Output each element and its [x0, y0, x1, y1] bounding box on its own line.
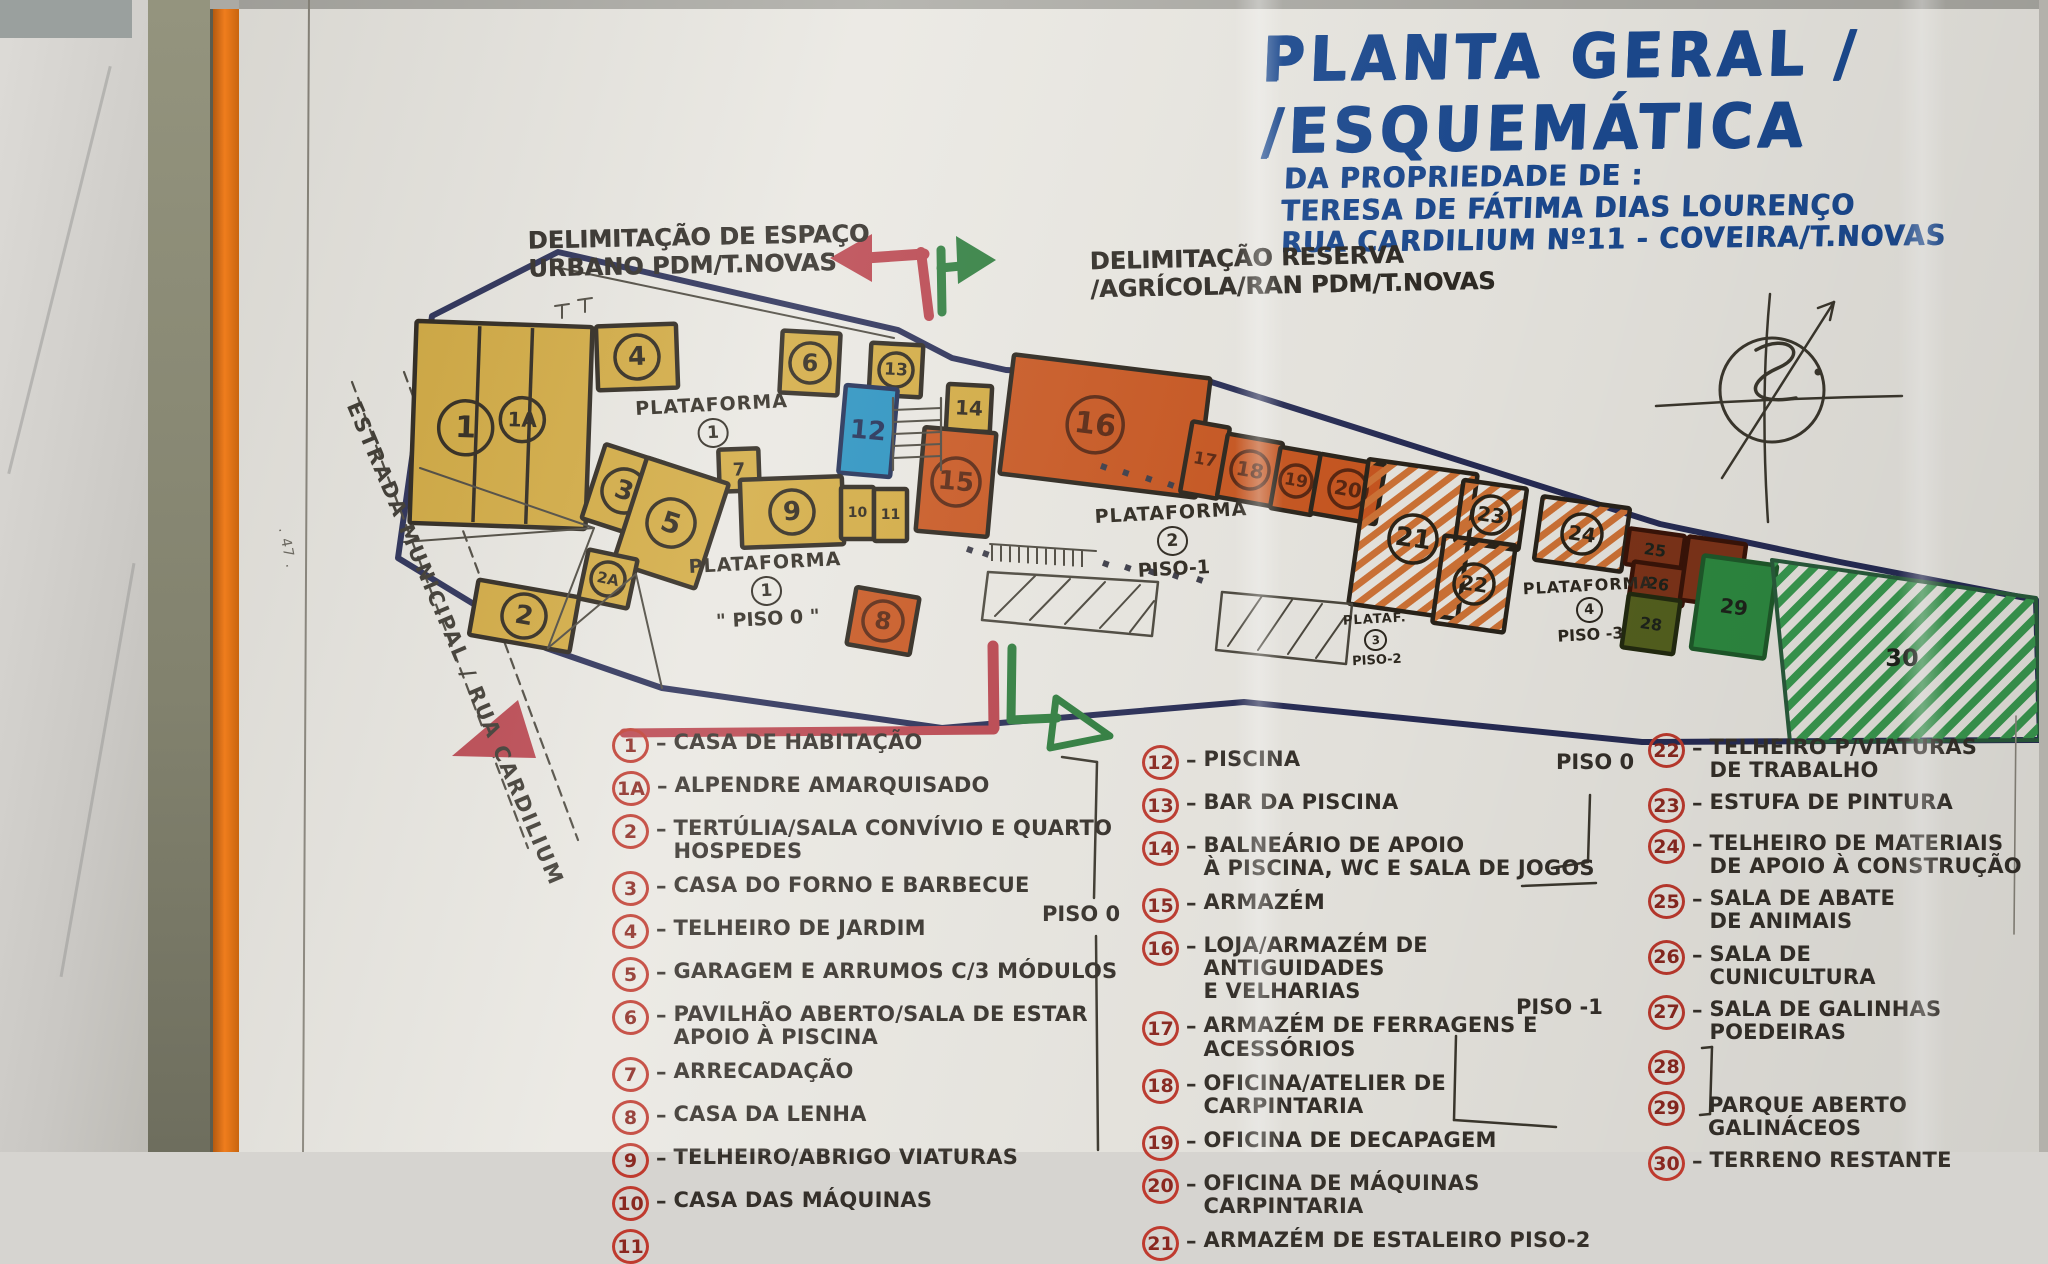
legend-number-11: 11 — [612, 1229, 649, 1264]
legend-item-21: 21–ARMAZÉM DE ESTALEIRO PISO-2 — [1142, 1226, 1612, 1261]
legend-number-20: 20 — [1142, 1169, 1179, 1204]
legend-label-10: CASA DAS MÁQUINAS — [674, 1186, 933, 1212]
photo-of-hand-drawn-site-plan: { "page_number": ". 47 .", "title": { "l… — [0, 0, 2048, 1152]
legend-dash: – — [1186, 1226, 1197, 1256]
legend-number-21: 21 — [1142, 1226, 1179, 1261]
legend-item-11: 11 — [612, 1229, 1132, 1264]
legend-item-20: 20–OFICINA DE MÁQUINAS CARPINTARIA — [1142, 1169, 1612, 1218]
legend-number-10: 10 — [612, 1186, 649, 1221]
light-falloff — [239, 0, 2048, 1152]
legend-label-20: OFICINA DE MÁQUINAS CARPINTARIA — [1204, 1169, 1613, 1218]
legend-label-21: ARMAZÉM DE ESTALEIRO PISO-2 — [1204, 1226, 1591, 1252]
paper-right-edge — [2039, 0, 2048, 1152]
legend-item-10: 10–CASA DAS MÁQUINAS — [612, 1186, 1132, 1221]
legend-dash: – — [1186, 1169, 1197, 1199]
legend-dash: – — [656, 1186, 667, 1216]
